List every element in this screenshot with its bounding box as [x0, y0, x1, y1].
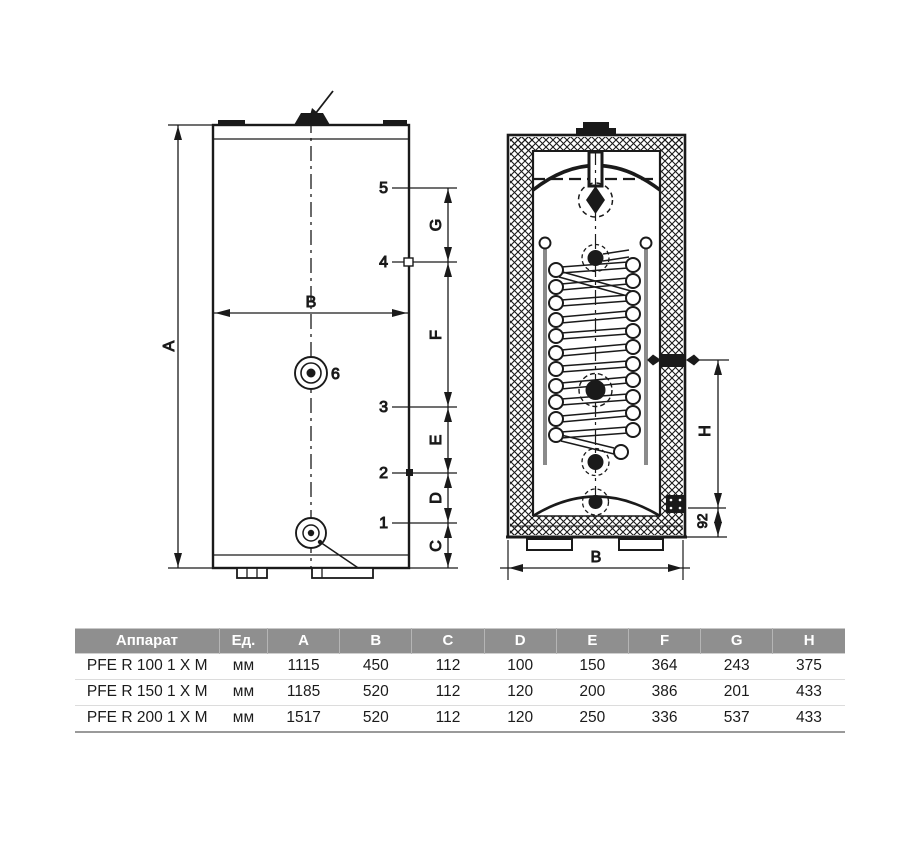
dim-h-92: H 92: [687, 360, 729, 537]
technical-drawing: A B 6: [0, 0, 920, 620]
port-4-label: 4: [379, 254, 388, 271]
dim-f-label: F: [428, 330, 445, 340]
value-cell: 243: [701, 654, 773, 680]
model-cell: PFE R 200 1 X M: [75, 706, 219, 733]
value-cell: 120: [484, 680, 556, 706]
dim-g-label: G: [428, 219, 445, 231]
dim-chain-right: G F E D C: [409, 188, 458, 568]
value-cell: 200: [556, 680, 628, 706]
value-cell: 201: [701, 680, 773, 706]
dim-e-label: E: [428, 435, 445, 446]
table-row: PFE R 150 1 X M мм 1185 520 112 120 200 …: [75, 680, 845, 706]
col-header-h: H: [773, 629, 845, 654]
value-cell: 336: [628, 706, 700, 733]
top-gasket-right: [383, 120, 407, 126]
port-5-label: 5: [379, 180, 388, 197]
value-cell: 1517: [268, 706, 340, 733]
value-cell: 433: [773, 680, 845, 706]
port-2-label: 2: [379, 465, 388, 482]
col-header-g: G: [701, 629, 773, 654]
unit-cell: мм: [219, 654, 267, 680]
value-cell: 112: [412, 654, 484, 680]
value-cell: 537: [701, 706, 773, 733]
unit-cell: мм: [219, 706, 267, 733]
value-cell: 112: [412, 706, 484, 733]
value-cell: 520: [340, 706, 412, 733]
value-cell: 1185: [268, 680, 340, 706]
left-view-exterior: A B 6: [161, 91, 458, 578]
left-view-feet: [237, 568, 373, 578]
col-header-f: F: [628, 629, 700, 654]
right-view-foot-right: [619, 539, 663, 550]
dim-b-label: B: [306, 294, 317, 311]
value-cell: 150: [556, 654, 628, 680]
model-cell: PFE R 150 1 X M: [75, 680, 219, 706]
table-row: PFE R 100 1 X M мм 1115 450 112 100 150 …: [75, 654, 845, 680]
side-fitting-lower: [666, 495, 686, 513]
port-6-label: 6: [331, 366, 340, 383]
top-gasket-left: [218, 120, 245, 126]
port-1-label: 1: [379, 515, 388, 532]
table-row: PFE R 200 1 X M мм 1517 520 112 120 250 …: [75, 706, 845, 733]
dim-a: A: [161, 125, 213, 568]
value-cell: 100: [484, 654, 556, 680]
value-cell: 364: [628, 654, 700, 680]
spec-table-header-row: Аппарат Ед. A B C D E F G H: [75, 629, 845, 654]
dim-c-label: C: [428, 540, 445, 552]
dim-d-label: D: [428, 492, 445, 504]
col-header-c: C: [412, 629, 484, 654]
col-header-apparat: Аппарат: [75, 629, 219, 654]
value-cell: 120: [484, 706, 556, 733]
value-cell: 433: [773, 706, 845, 733]
col-header-b: B: [340, 629, 412, 654]
col-header-e: E: [556, 629, 628, 654]
unit-cell: мм: [219, 680, 267, 706]
value-cell: 375: [773, 654, 845, 680]
col-header-unit: Ед.: [219, 629, 267, 654]
right-view-foot-left: [527, 539, 572, 550]
col-header-a: A: [268, 629, 340, 654]
value-cell: 250: [556, 706, 628, 733]
value-cell: 520: [340, 680, 412, 706]
value-cell: 1115: [268, 654, 340, 680]
boiler-dimension-sheet: A B 6: [0, 0, 920, 866]
model-cell: PFE R 100 1 X M: [75, 654, 219, 680]
top-cap: [583, 122, 609, 129]
spec-table: Аппарат Ед. A B C D E F G H PFE R 100 1 …: [75, 628, 845, 733]
col-header-d: D: [484, 629, 556, 654]
value-cell: 450: [340, 654, 412, 680]
dim-a-label: A: [161, 340, 178, 351]
port-3-label: 3: [379, 399, 388, 416]
right-view-section: H 92 B: [500, 122, 729, 580]
dim-92-label: 92: [695, 513, 710, 528]
value-cell: 112: [412, 680, 484, 706]
dim-h-label: H: [697, 425, 714, 437]
value-cell: 386: [628, 680, 700, 706]
dim-b-bottom-label: B: [591, 549, 602, 566]
